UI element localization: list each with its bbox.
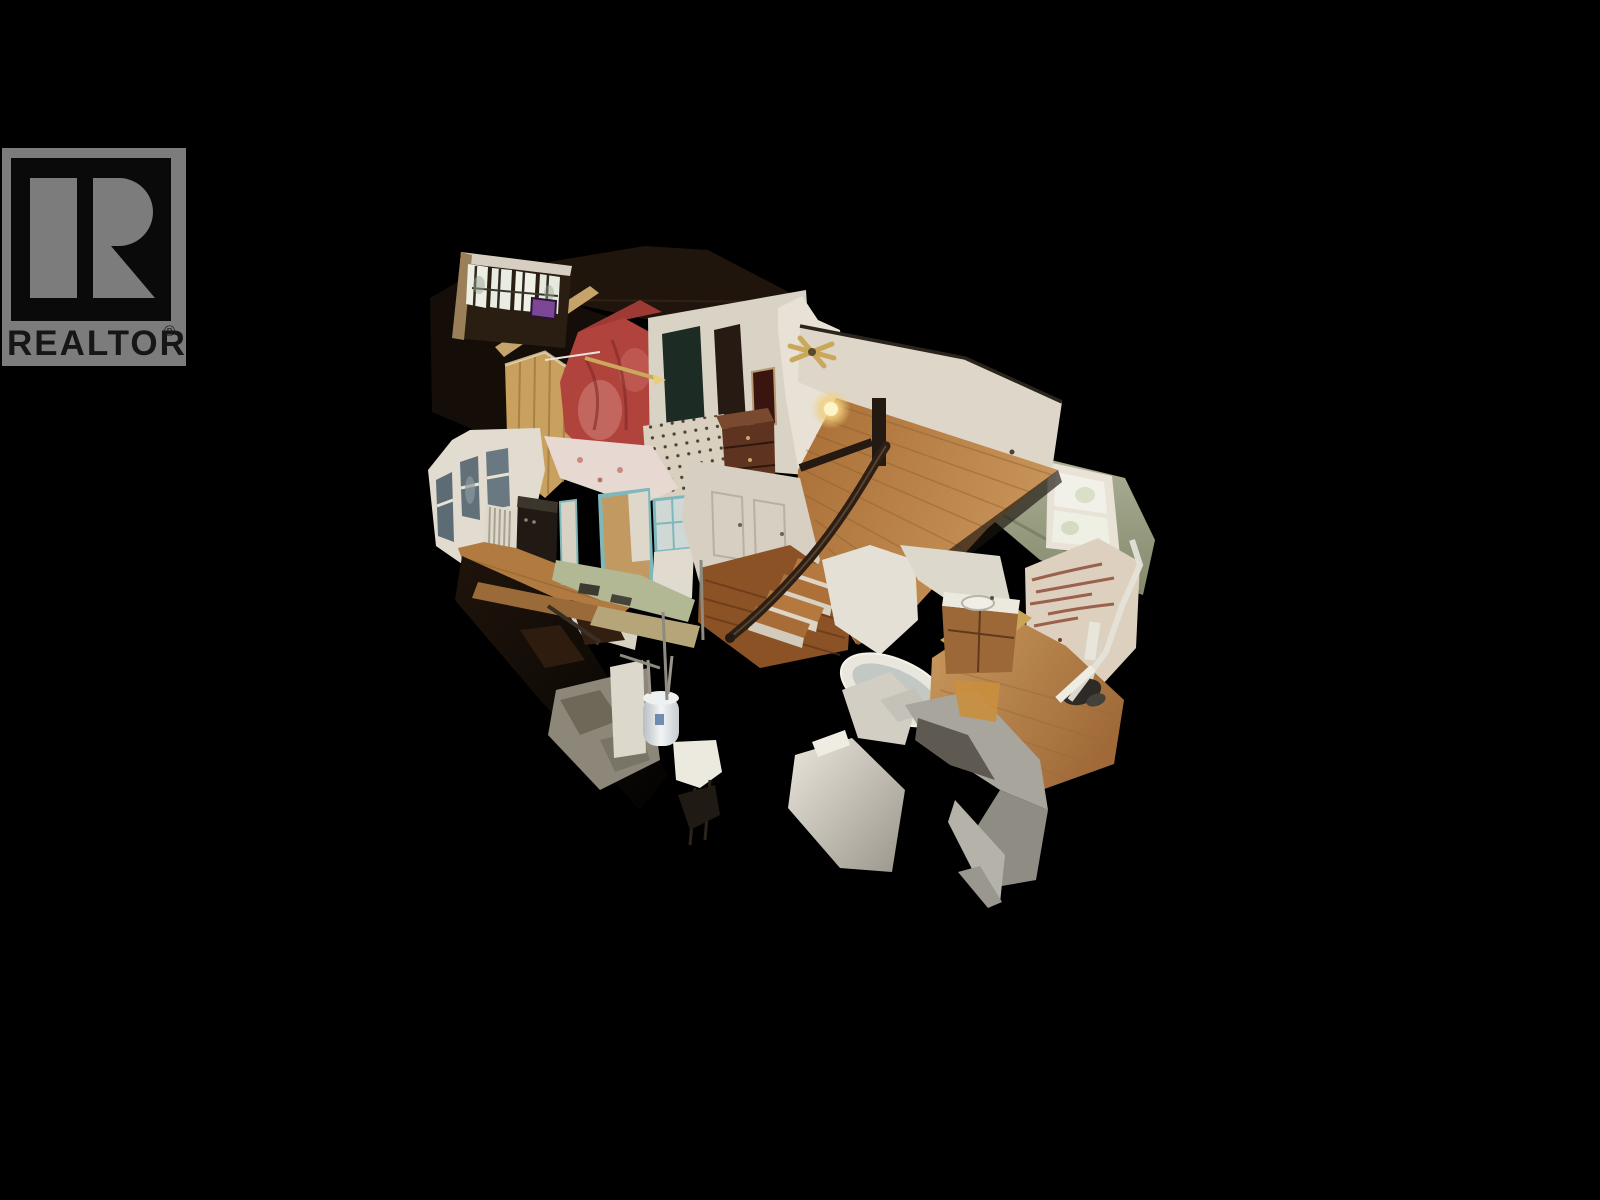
dollhouse-3d-view[interactable] [0, 0, 1600, 1200]
viewer-canvas[interactable]: REALTOR ® [0, 0, 1600, 1200]
realtor-wordmark: REALTOR [7, 324, 186, 363]
realtor-watermark: REALTOR ® [2, 148, 186, 366]
radiator [484, 504, 518, 548]
realtor-logo-icon: REALTOR ® [2, 148, 186, 366]
bathroom-vanity [942, 592, 1020, 674]
purple-stained-window [531, 298, 556, 319]
vanity-sink [962, 596, 994, 610]
registered-trademark-symbol: ® [164, 323, 175, 340]
wall-sconce-light [811, 389, 851, 429]
